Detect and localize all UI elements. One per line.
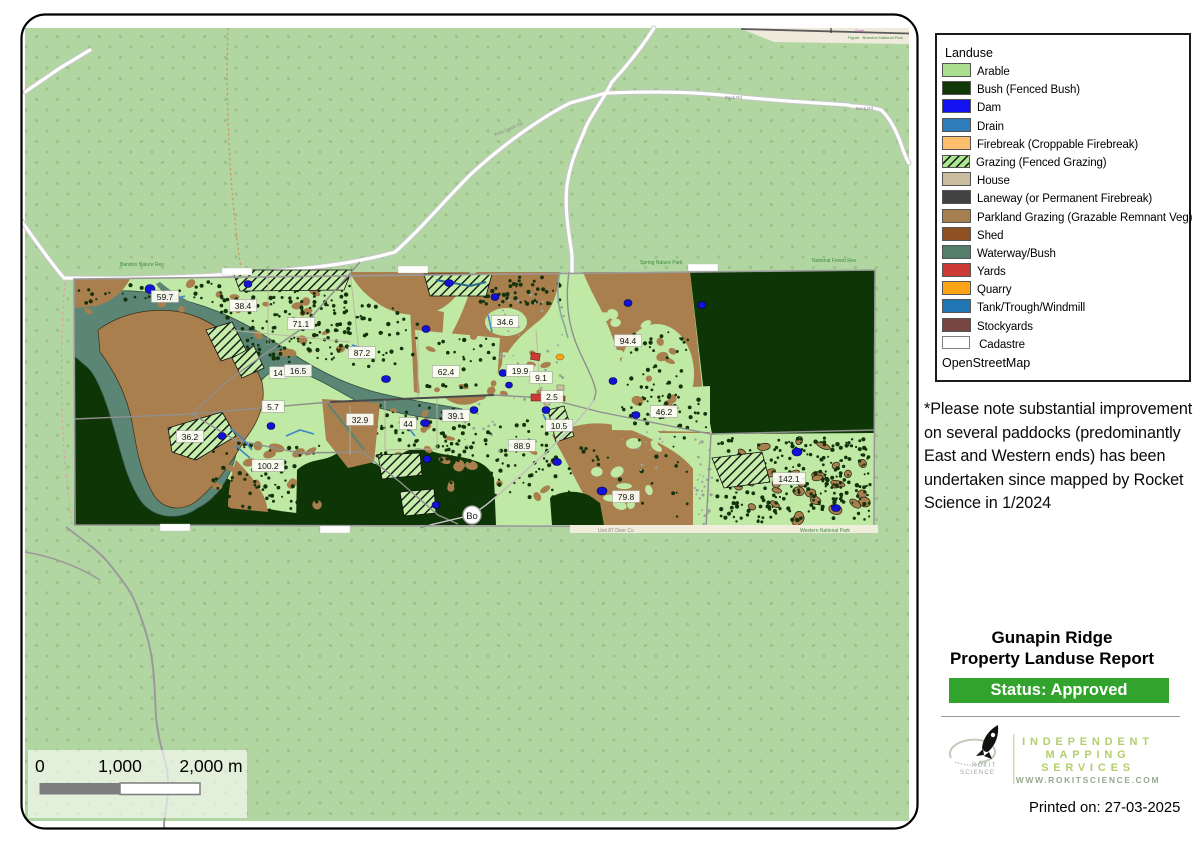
- svg-text:National Forest Res: National Forest Res: [812, 258, 857, 264]
- svg-text:SERVICES: SERVICES: [1041, 762, 1135, 774]
- svg-text:MAPPING: MAPPING: [1046, 749, 1131, 761]
- svg-text:Spring Nature Park: Spring Nature Park: [640, 260, 683, 266]
- svg-text:32.9: 32.9: [352, 415, 369, 425]
- svg-text:Back Rd: Back Rd: [856, 106, 874, 111]
- svg-text:38.4: 38.4: [235, 301, 252, 311]
- svg-text:Back Rd: Back Rd: [725, 95, 743, 100]
- svg-text:Spire: Spire: [855, 28, 865, 33]
- svg-text:Bo: Bo: [466, 511, 478, 522]
- svg-text:Unit 87 Deer Co: Unit 87 Deer Co: [598, 528, 634, 534]
- svg-text:44: 44: [403, 419, 413, 429]
- svg-text:5.7: 5.7: [267, 402, 279, 412]
- svg-text:1,000: 1,000: [98, 756, 142, 776]
- svg-text:ROKIT: ROKIT: [972, 763, 996, 769]
- svg-text:71.1: 71.1: [293, 319, 310, 329]
- svg-text:WWW.ROKITSCIENCE.COM: WWW.ROKITSCIENCE.COM: [1016, 775, 1160, 785]
- svg-text:Figure Brandon National Park: Figure Brandon National Park: [848, 35, 903, 40]
- svg-text:19.9: 19.9: [512, 366, 529, 376]
- svg-text:59.7: 59.7: [157, 292, 174, 302]
- svg-text:Western National Park: Western National Park: [800, 528, 850, 534]
- svg-text:79.8: 79.8: [618, 492, 635, 502]
- svg-text:9.1: 9.1: [535, 373, 547, 383]
- svg-text:10.5: 10.5: [551, 421, 568, 431]
- svg-text:142.1: 142.1: [778, 474, 800, 484]
- svg-text:Bandon Nature Res: Bandon Nature Res: [120, 262, 164, 268]
- svg-text:14: 14: [273, 368, 283, 378]
- svg-text:16.5: 16.5: [290, 366, 307, 376]
- svg-text:100.2: 100.2: [257, 461, 279, 471]
- svg-text:INDEPENDENT: INDEPENDENT: [1022, 736, 1154, 748]
- svg-text:34.6: 34.6: [497, 317, 514, 327]
- svg-text:39.1: 39.1: [448, 411, 465, 421]
- svg-text:88.9: 88.9: [514, 441, 531, 451]
- svg-text:46.2: 46.2: [656, 407, 673, 417]
- svg-text:87.2: 87.2: [354, 348, 371, 358]
- svg-text:36.2: 36.2: [182, 432, 199, 442]
- svg-text:94.4: 94.4: [620, 336, 637, 346]
- svg-text:SCIENCE: SCIENCE: [960, 770, 995, 776]
- svg-text:2.5: 2.5: [546, 392, 558, 402]
- svg-text:62.4: 62.4: [438, 367, 455, 377]
- svg-text:0: 0: [35, 756, 45, 776]
- svg-text:2,000 m: 2,000 m: [179, 756, 242, 776]
